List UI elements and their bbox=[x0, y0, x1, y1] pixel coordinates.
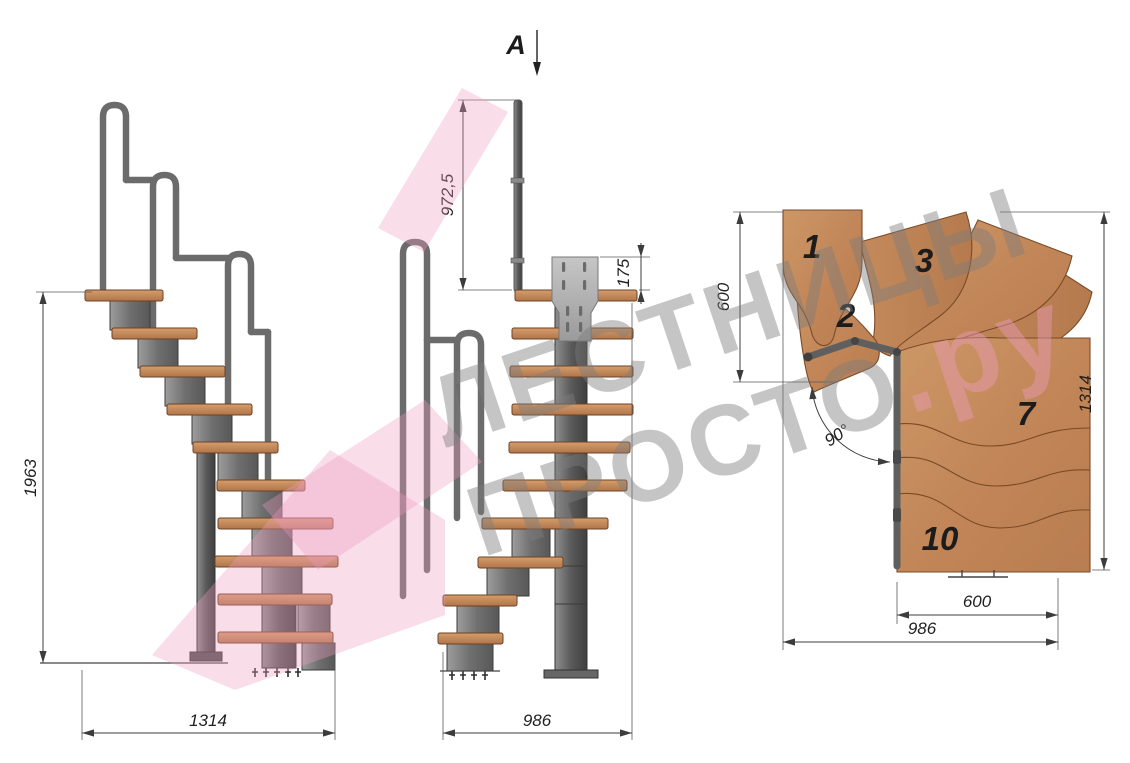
handrail-loop bbox=[403, 242, 427, 596]
stair-technical-drawing: 1963 1314 A bbox=[0, 0, 1130, 763]
post-joint bbox=[511, 258, 524, 263]
step-label-7: 7 bbox=[1017, 395, 1037, 432]
dim-bracket-height: 175 bbox=[614, 258, 633, 287]
rail-sleeve bbox=[893, 450, 901, 464]
handrail-loop bbox=[228, 254, 251, 406]
mounting-bracket bbox=[552, 257, 598, 341]
dim-total-height: 1963 bbox=[21, 459, 40, 497]
post-joint bbox=[511, 178, 524, 183]
handrail-loop bbox=[457, 333, 481, 518]
support-column bbox=[197, 453, 215, 654]
dim-step-depth: 600 bbox=[714, 282, 733, 311]
anchor-bolts bbox=[252, 668, 301, 677]
anchor-bolts bbox=[449, 671, 488, 680]
front-elevation-view: A bbox=[403, 30, 650, 740]
step-label-2: 2 bbox=[836, 297, 856, 334]
step-label-1: 1 bbox=[803, 228, 821, 265]
dim-lower-width: 600 bbox=[963, 592, 992, 611]
dim-total-length: 1314 bbox=[189, 711, 227, 730]
column-base bbox=[190, 652, 222, 661]
handrail-loop bbox=[103, 105, 126, 292]
handrail-loop bbox=[153, 175, 176, 330]
rail-sleeve bbox=[893, 508, 901, 522]
column-base-plate bbox=[544, 670, 598, 678]
front-handrail bbox=[403, 242, 481, 596]
section-marker-label: A bbox=[505, 30, 526, 60]
plan-view: 1 2 3 7 10 600 bbox=[714, 210, 1110, 650]
section-arrow-head bbox=[533, 62, 541, 76]
section-marker: A bbox=[505, 30, 541, 76]
drawing-layer: 1963 1314 A bbox=[0, 0, 1130, 763]
step-label-3: 3 bbox=[915, 242, 933, 279]
step-label-10: 10 bbox=[922, 520, 959, 557]
side-elevation-view: 1963 1314 bbox=[21, 105, 338, 740]
dim-flight-length: 1314 bbox=[1076, 375, 1095, 413]
dim-total-width: 986 bbox=[523, 711, 552, 730]
dim-turn-angle: 90° bbox=[821, 420, 853, 450]
plan-steps bbox=[783, 210, 1092, 572]
dim-overall-width: 986 bbox=[908, 619, 937, 638]
front-treads bbox=[438, 290, 637, 644]
dim-handrail-height: 972,5 bbox=[438, 173, 457, 216]
